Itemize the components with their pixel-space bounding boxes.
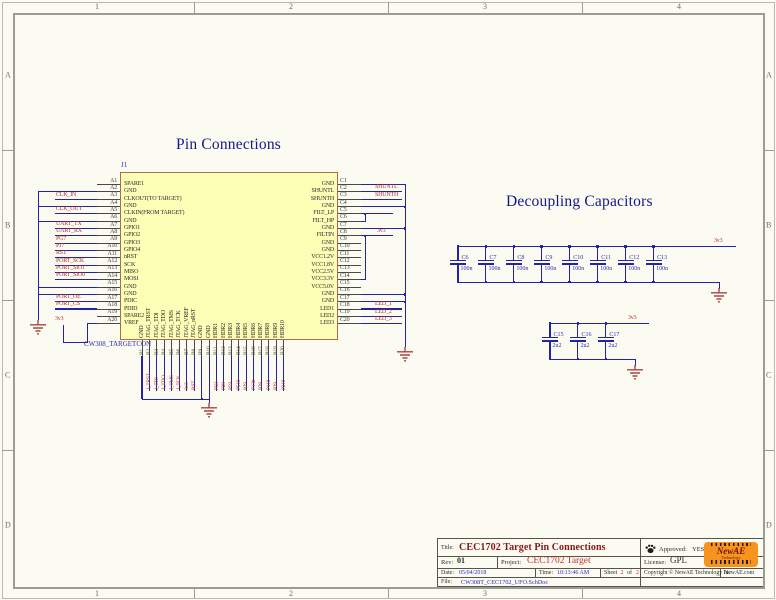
pin-name: GND xyxy=(322,247,334,254)
capacitor-value: 100n xyxy=(488,266,500,273)
ground-rail xyxy=(550,359,636,360)
net-label: J_TCK xyxy=(176,375,183,390)
pin-number: C20 xyxy=(340,317,349,324)
approved-value: YES xyxy=(692,546,704,553)
zone-number: 4 xyxy=(677,589,681,598)
sheet-total: 2 xyxy=(636,570,639,577)
pin-number: B19 xyxy=(273,346,280,355)
title-block-line xyxy=(497,556,498,569)
capacitor-ref: C7 xyxy=(489,255,496,262)
capacitor-lead xyxy=(457,265,458,282)
pin-number: C6 xyxy=(340,214,347,221)
sheet-label: Sheet xyxy=(604,570,617,577)
capacitor-lead xyxy=(597,246,598,260)
net-label: J_TDO xyxy=(161,375,168,390)
wire xyxy=(87,323,98,324)
pin-number: C14 xyxy=(340,273,349,280)
ground-symbol xyxy=(624,365,646,380)
sheet-of: of xyxy=(627,570,632,577)
pin-name: GPIO2 xyxy=(124,232,140,239)
pin-name: VREF xyxy=(124,320,139,327)
rev-label: Rev: xyxy=(441,559,453,566)
net-label: PORT_CS xyxy=(56,301,80,308)
net-label: J_TMS xyxy=(169,375,176,390)
time-label: Time: xyxy=(539,570,553,577)
wire xyxy=(361,323,402,324)
pin-name: JTAG_nRST xyxy=(191,309,198,338)
title-block-line xyxy=(437,538,763,539)
title-block-line xyxy=(535,568,536,577)
zone-number: 1 xyxy=(95,589,99,598)
sheet-title: CEC1702 Target Pin Connections xyxy=(459,542,606,554)
pin-number: C15 xyxy=(340,280,349,287)
zone-divider xyxy=(2,450,13,451)
capacitor-ref: C9 xyxy=(545,255,552,262)
pin-name: GPIO4 xyxy=(124,247,140,254)
pin-number: B6 xyxy=(176,349,183,355)
pin-name: GND xyxy=(124,203,136,210)
file-value: CW308T_CEC1702_UFO.SchDoc xyxy=(461,579,548,586)
pin-name: GND xyxy=(322,203,334,210)
pin-name: GND xyxy=(322,291,334,298)
pin-connections-heading: Pin Connections xyxy=(176,137,281,153)
net-label: UART_RX xyxy=(56,228,82,235)
capacitor-value: 100n xyxy=(461,266,473,273)
net-label: P29 xyxy=(243,382,250,390)
file-label: File: xyxy=(441,579,452,586)
pin-number: A5 xyxy=(95,207,117,214)
pin-number: C1 xyxy=(340,178,347,185)
zone-number: 3 xyxy=(483,2,487,11)
zone-divider xyxy=(2,150,13,151)
pin-name: HDR8 xyxy=(265,323,272,338)
capacitor-lead xyxy=(625,246,626,260)
pin-name: GND xyxy=(322,225,334,232)
license-label: License: xyxy=(644,559,666,566)
pin-name: HDR1 xyxy=(213,323,220,338)
capacitor-lead xyxy=(653,265,654,282)
pin-name: HDR2 xyxy=(221,323,228,338)
zone-letter: B xyxy=(5,221,10,230)
website-text: NewAE.com xyxy=(724,570,754,577)
zone-divider xyxy=(763,300,774,301)
pin-number: A10 xyxy=(95,243,117,250)
capacitor-value: 2u2 xyxy=(580,343,589,350)
pin-number: A15 xyxy=(95,280,117,287)
wire xyxy=(87,323,88,343)
net-label: P28 xyxy=(221,382,228,390)
pin-number: C4 xyxy=(340,200,347,207)
pin-number: A13 xyxy=(95,265,117,272)
zone-number: 4 xyxy=(677,2,681,11)
net-label: P130 xyxy=(251,380,258,390)
capacitor-lead xyxy=(549,342,550,359)
pin-number: A8 xyxy=(95,229,117,236)
title-block-line xyxy=(600,568,601,577)
pin-number: A18 xyxy=(95,302,117,309)
zone-divider xyxy=(763,450,774,451)
net-label: SHUNTL xyxy=(375,184,397,191)
zone-letter: D xyxy=(5,521,11,530)
zone-divider xyxy=(2,300,13,301)
zone-divider xyxy=(582,587,583,598)
pin-number: A20 xyxy=(95,317,117,324)
net-label-3v3: 3v3 xyxy=(628,315,636,322)
wire xyxy=(55,308,97,309)
pin-name: PDID xyxy=(124,306,137,313)
junction-dot xyxy=(364,235,367,238)
net-label: CLK_OUT xyxy=(56,206,82,213)
license-value: GPL xyxy=(670,557,687,564)
junction-dot xyxy=(201,398,204,401)
capacitor-lead xyxy=(653,246,654,260)
pin-number: B18 xyxy=(265,346,272,355)
pin-name: VCC1.8V xyxy=(311,262,334,269)
pin-number: A16 xyxy=(95,287,117,294)
pin-number: B10 xyxy=(206,346,213,355)
capacitor-ref: C16 xyxy=(581,332,591,339)
wire xyxy=(209,356,210,399)
zone-divider xyxy=(763,150,774,151)
zone-divider xyxy=(194,587,195,598)
capacitor-lead xyxy=(577,323,578,337)
capacitor-lead xyxy=(569,265,570,282)
ground-rail xyxy=(458,282,719,283)
time-value: 10:13:46 AM xyxy=(557,570,589,577)
net-label: P58 xyxy=(214,382,221,390)
pin-number: B15 xyxy=(243,346,250,355)
pin-name: HDR7 xyxy=(258,323,265,338)
connector-designator: J1 xyxy=(121,162,127,169)
pin-number: C17 xyxy=(340,295,349,302)
pin-name: LED2 xyxy=(320,313,334,320)
pin-number: B17 xyxy=(258,346,265,355)
capacitor-lead xyxy=(549,323,550,337)
pin-name: JTAG_TMS xyxy=(169,310,176,338)
pin-name: GND xyxy=(322,181,334,188)
date-value: 05/04/2018 xyxy=(459,570,486,577)
pin-number: B12 xyxy=(221,346,228,355)
net-label: RST xyxy=(56,250,66,257)
capacitor-lead xyxy=(605,342,606,359)
pin-name: CLKOUT(TO TARGET) xyxy=(124,196,181,203)
pin-number: A11 xyxy=(95,251,117,258)
ground-symbol xyxy=(27,320,49,335)
net-label: SHUNTH xyxy=(375,192,398,199)
pin-name: JTAG_TCK xyxy=(176,310,183,338)
capacitor-value: 100n xyxy=(628,266,640,273)
pin-number: B2 xyxy=(146,349,153,355)
copyright-text: Copyright © NewAE Technology Inc xyxy=(644,570,731,577)
power-rail xyxy=(550,323,649,324)
title-label: Title: xyxy=(441,545,454,552)
zone-number: 2 xyxy=(289,589,293,598)
pin-number: A14 xyxy=(95,273,117,280)
pin-number: C3 xyxy=(340,192,347,199)
pin-number: C7 xyxy=(340,222,347,229)
pin-number: A7 xyxy=(95,222,117,229)
pin-number: A9 xyxy=(95,236,117,243)
capacitor-value: 100n xyxy=(544,266,556,273)
net-label: J_TRST xyxy=(146,373,153,390)
pin-name: HDR9 xyxy=(273,323,280,338)
net-label: UART_TX xyxy=(56,221,82,228)
capacitor-lead xyxy=(513,246,514,260)
pin-name: GND xyxy=(322,240,334,247)
project-value: CEC1702 Target xyxy=(527,556,591,567)
net-label: J_TDI xyxy=(154,377,161,390)
capacitor-value: 100n xyxy=(656,266,668,273)
newae-logo: NewAE Technology xyxy=(704,542,758,567)
wire xyxy=(55,213,97,214)
pin-name: GND xyxy=(124,218,136,225)
zone-number: 3 xyxy=(483,589,487,598)
capacitor-value: 2u2 xyxy=(608,343,617,350)
capacitor-value: 100n xyxy=(572,266,584,273)
pin-number: B13 xyxy=(228,346,235,355)
ground-symbol xyxy=(708,288,730,303)
pin-number: C16 xyxy=(340,287,349,294)
wire xyxy=(55,199,97,200)
pin-name: SPARE2 xyxy=(124,313,144,320)
pin-number: A17 xyxy=(95,295,117,302)
net-label: LED_2 xyxy=(375,309,392,316)
wire xyxy=(361,206,406,207)
capacitor-value: 100n xyxy=(600,266,612,273)
pin-number: C13 xyxy=(340,265,349,272)
zone-divider xyxy=(582,2,583,13)
wire xyxy=(63,325,64,343)
pin-number: B1 xyxy=(139,349,146,355)
capacitor-lead xyxy=(541,265,542,282)
pin-number: B9 xyxy=(198,349,205,355)
capacitor-value: 2u2 xyxy=(553,343,562,350)
pin-name: JTAG_TDO xyxy=(161,310,168,338)
title-block-line xyxy=(640,538,641,587)
net-label: P110 xyxy=(266,380,273,390)
pin-number: C10 xyxy=(340,243,349,250)
pin-number: A4 xyxy=(95,200,117,207)
ground-symbol xyxy=(198,403,220,418)
capacitor-ref: C13 xyxy=(657,255,667,262)
net-label: PORT_SIO1 xyxy=(56,265,85,272)
wire xyxy=(365,236,366,281)
zone-letter: C xyxy=(766,371,771,380)
pin-name: VCC5.0V xyxy=(311,284,334,291)
capacitor-ref: C15 xyxy=(554,332,564,339)
wire xyxy=(361,294,406,295)
net-label: PJ7 xyxy=(56,243,64,250)
zone-letter: B xyxy=(766,221,771,230)
zone-letter: C xyxy=(5,371,10,380)
pin-name: GND xyxy=(322,298,334,305)
pin-number: C8 xyxy=(340,229,347,236)
rev-value: 01 xyxy=(457,557,465,564)
capacitor-ref: C10 xyxy=(573,255,583,262)
pin-name: GND xyxy=(206,326,213,338)
pin-name: SHUNTH xyxy=(311,196,334,203)
net-label: P59 xyxy=(228,382,235,390)
pin-name: SPARE1 xyxy=(124,181,144,188)
net-label-3v3: 3v3 xyxy=(714,238,722,245)
pin-number: C2 xyxy=(340,185,347,192)
gnd-bus-right xyxy=(405,184,406,347)
pin-name: LED1 xyxy=(320,306,334,313)
zone-divider xyxy=(388,2,389,13)
wire xyxy=(201,356,202,399)
wire xyxy=(361,199,402,200)
gnd-bus-left xyxy=(38,192,39,321)
pin-number: B7 xyxy=(184,349,191,355)
net-label: RST xyxy=(191,381,198,390)
pin-number: B4 xyxy=(161,349,168,355)
junction-dot xyxy=(364,213,367,216)
pin-name: CLKIN(FROM TARGET) xyxy=(124,210,184,217)
zone-letter: D xyxy=(766,521,772,530)
pin-name: GND xyxy=(124,284,136,291)
capacitor-lead xyxy=(485,246,486,260)
pin-name: FILT_LP xyxy=(313,210,334,217)
net-label: P28 xyxy=(258,382,265,390)
net-label: P510 xyxy=(236,380,243,390)
pin-number: B8 xyxy=(191,349,198,355)
pin-number: B11 xyxy=(213,347,220,355)
pin-name: VCC3.3V xyxy=(311,276,334,283)
pin-number: C19 xyxy=(340,309,349,316)
capacitor-ref: C12 xyxy=(629,255,639,262)
net-label: PORT_OE xyxy=(56,294,81,301)
decoupling-heading: Decoupling Capacitors xyxy=(506,194,653,210)
pin-name: LED3 xyxy=(320,320,334,327)
zone-divider xyxy=(388,587,389,598)
pin-number: C11 xyxy=(340,251,349,258)
pin-name: JTAG_TRST xyxy=(146,308,153,338)
date-label: Date: xyxy=(441,570,454,577)
approved-label: Approved: xyxy=(659,546,687,553)
capacitor-lead xyxy=(457,246,458,260)
pin-name: HDR3 xyxy=(228,323,235,338)
pin-number: C18 xyxy=(340,302,349,309)
junction-dot xyxy=(404,227,407,230)
sheet-number: 2 xyxy=(621,570,624,577)
pin-name: VCC2.5V xyxy=(311,269,334,276)
pin-number: A2 xyxy=(95,185,117,192)
pin-name: GND xyxy=(124,291,136,298)
net-label: PORT_SIO0 xyxy=(56,272,85,279)
logo-pins-bottom xyxy=(711,560,751,564)
pin-number: C9 xyxy=(340,236,347,243)
pin-name: GND xyxy=(124,188,136,195)
net-label: 3v3 xyxy=(184,383,191,391)
capacitor-lead xyxy=(513,265,514,282)
pin-name: HDR6 xyxy=(251,323,258,338)
pin-number: B20 xyxy=(280,346,287,355)
net-label: CLK_IN xyxy=(56,192,76,199)
junction-dot xyxy=(404,301,407,304)
net-label: LED_3 xyxy=(375,316,392,323)
net-label: P29 xyxy=(273,382,280,390)
wire xyxy=(38,287,98,288)
zone-divider xyxy=(194,2,195,13)
ground-symbol xyxy=(394,347,416,362)
capacitor-ref: C6 xyxy=(462,255,469,262)
title-block-line xyxy=(437,538,438,587)
net-label-3v3: 3v3 xyxy=(55,316,63,323)
pin-name: MISO xyxy=(124,269,138,276)
zone-number: 2 xyxy=(289,2,293,11)
capacitor-ref: C11 xyxy=(601,255,611,262)
capacitor-lead xyxy=(597,265,598,282)
zone-letter: A xyxy=(5,71,11,80)
pin-name: SHUNTL xyxy=(312,188,334,195)
paw-icon xyxy=(645,544,656,554)
net-label: 3v3 xyxy=(377,228,385,235)
zone-number: 1 xyxy=(95,2,99,11)
pin-name: GND xyxy=(198,326,205,338)
pin-name: JTAG_VREF xyxy=(184,307,191,338)
net-label: PORT_SCK xyxy=(56,258,84,265)
pin-name: VCC1.2V xyxy=(311,254,334,261)
zone-letter: A xyxy=(766,71,772,80)
pin-name: HDR5 xyxy=(243,323,250,338)
pin-name: HDR4 xyxy=(236,323,243,338)
pin-name: PDIC xyxy=(124,298,137,305)
pin-number: A1 xyxy=(95,178,117,185)
pin-number: C5 xyxy=(340,207,347,214)
capacitor-lead xyxy=(569,246,570,260)
wire xyxy=(63,342,88,343)
pin-name: GPIO1 xyxy=(124,225,140,232)
pin-name: MOSI xyxy=(124,276,138,283)
wire xyxy=(141,356,142,399)
net-label: LED_1 xyxy=(375,301,392,308)
net-label: P210 xyxy=(281,380,288,390)
capacitor-ref: C8 xyxy=(517,255,524,262)
pin-name: GND xyxy=(139,326,146,338)
gnd-bus-bottom xyxy=(142,399,210,400)
pin-name: SCK xyxy=(124,262,135,269)
pin-name: FILT_HP xyxy=(313,218,334,225)
pin-number: B5 xyxy=(169,349,176,355)
capacitor-lead xyxy=(485,265,486,282)
pin-number: B14 xyxy=(236,346,243,355)
net-label: PG7 xyxy=(56,236,66,243)
junction-dot xyxy=(404,293,407,296)
pin-number: C12 xyxy=(340,258,349,265)
pin-number: B3 xyxy=(154,349,161,355)
junction-dot xyxy=(404,206,407,209)
pin-name: HDR10 xyxy=(280,320,287,338)
pin-name: GPIO3 xyxy=(124,240,140,247)
capacitor-ref: C17 xyxy=(609,332,619,339)
pin-name: JTAG_TDI xyxy=(154,312,161,338)
capacitor-lead xyxy=(577,342,578,359)
capacitor-lead xyxy=(541,246,542,260)
schematic-sheet: 1234 1234 ABCD ABCD Pin Connections Deco… xyxy=(0,0,776,600)
pin-name: nRST xyxy=(124,254,137,261)
capacitor-value: 100n xyxy=(516,266,528,273)
project-label: Project: xyxy=(501,559,521,566)
pin-number: B16 xyxy=(251,346,258,355)
pin-name: FILTIN xyxy=(317,232,334,239)
pin-number: A12 xyxy=(95,258,117,265)
capacitor-lead xyxy=(625,265,626,282)
capacitor-lead xyxy=(605,323,606,337)
wire xyxy=(55,279,97,280)
pin-number: A3 xyxy=(95,192,117,199)
pin-number: A19 xyxy=(95,309,117,316)
pin-number: A6 xyxy=(95,214,117,221)
